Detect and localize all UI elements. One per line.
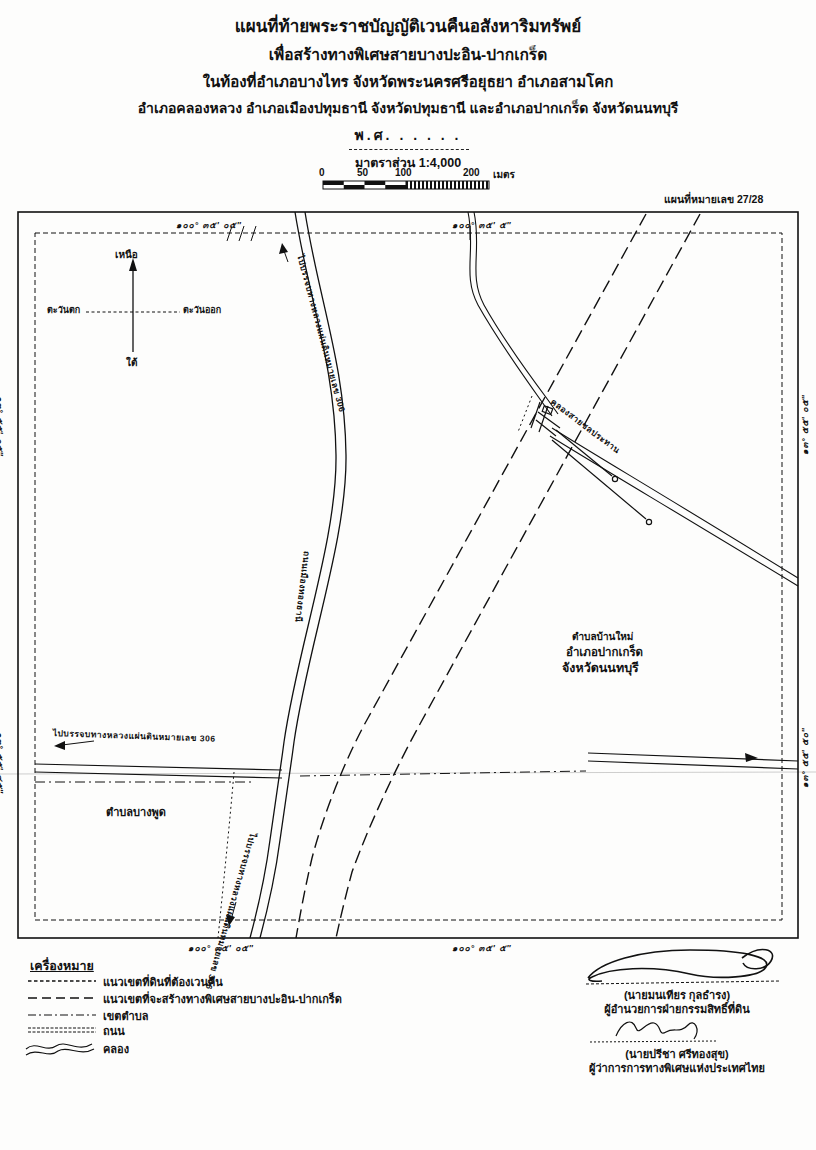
title-line-1: แผนที่ท้ายพระราชบัญญัติเวนคืนอสังหาริมทร…	[0, 12, 816, 39]
bridge-junction-detail	[531, 402, 652, 525]
tambon-ban-mai-label: ตำบลบ้านใหม่	[572, 629, 633, 644]
scalebar-tick-0: 0	[319, 167, 325, 178]
signatory-1-title: ผู้อำนวยการฝ่ายกรรมสิทธิ์ที่ดิน	[552, 1000, 802, 1018]
tambon-bang-phut-label: ตำบลบางพูด	[106, 803, 166, 821]
legend-label-expressway: แนวเขตที่จะสร้างทางพิเศษสายบางปะอิน-ปากเ…	[103, 990, 342, 1008]
ns-road-direction-arrows	[226, 243, 288, 926]
scalebar-tick-100: 100	[395, 167, 412, 178]
legend-symbol-road	[28, 1028, 96, 1032]
coordinate-right-bottom: ๑๓° ๕๕′ ๕๐″	[798, 727, 812, 788]
signatory-2-title: ผู้ว่าการการทางพิเศษแห่งประเทศไทย	[552, 1059, 802, 1077]
coordinate-right-top: ๑๓° ๕๕′ ๐๕″	[798, 394, 812, 455]
west-road	[35, 764, 282, 778]
scalebar-unit: เมตร	[493, 167, 515, 182]
title-line-2: เพื่อสร้างทางพิเศษสายบางปะอิน-ปากเกร็ด	[0, 42, 816, 67]
coordinate-bottom-right: ๑๐๐° ๓๕′ ๕″	[452, 941, 512, 955]
west-road-arrow	[54, 741, 94, 750]
scalebar-tick-50: 50	[357, 167, 368, 178]
legend-label-canal: คลอง	[103, 1040, 129, 1058]
signature-scribble-2	[590, 1022, 716, 1042]
compass-north-label: เหนือ	[115, 247, 138, 262]
expressway-alignment	[296, 214, 700, 938]
legend-header: เครื่องหมาย	[30, 956, 94, 976]
legend-label-expropriation: แนวเขตที่ดินที่ต้องเวนคืน	[103, 973, 223, 991]
scale-bar	[323, 181, 489, 189]
map-outer-frame	[18, 212, 798, 938]
legend-symbol-canal-2	[26, 1049, 94, 1055]
tambon-boundary-line	[35, 771, 586, 782]
coordinate-top-left: ๑๐๐° ๓๕′ ๐๕″	[176, 218, 242, 232]
coordinate-top-right: ๑๐๐° ๓๕′ ๕″	[452, 218, 512, 232]
title-line-4: อำเภอคลองหลวง อำเภอเมืองปทุมธานี จังหวัด…	[0, 97, 816, 119]
compass-south-label: ใต้	[126, 355, 137, 370]
signature-scribble-1	[586, 950, 780, 984]
year-underline	[349, 149, 469, 150]
scalebar-tick-200: 200	[463, 167, 480, 178]
legend-symbols	[26, 981, 96, 1055]
coordinate-left-top: ๑๓° ๕๕′ ๐๕″	[0, 396, 7, 457]
year-line: พ.ศ. . . . . .	[0, 124, 816, 146]
map-sheet: แผนที่ท้ายพระราชบัญญัติเวนคืนอสังหาริมทร…	[0, 0, 816, 1150]
legend-label-road: ถนน	[103, 1022, 125, 1040]
title-line-3: ในท้องที่อำเภอบางไทร จังหวัดพระนครศรีอยุ…	[0, 70, 816, 94]
compass-west-label: ตะวันตก	[47, 303, 80, 317]
coordinate-left-bottom: ๑๓° ๕๕′ ๔๕″	[0, 732, 7, 794]
east-road-arrow	[745, 753, 758, 762]
legend-symbol-canal	[26, 1044, 92, 1049]
compass-east-label: ตะวันออก	[183, 303, 221, 317]
canal	[468, 212, 798, 586]
east-road	[588, 753, 798, 769]
changwat-nonthaburi-label: จังหวัดนนทบุรี	[562, 658, 639, 678]
compass-rose	[86, 258, 180, 352]
map-number: แผนที่หมายเลข 27/28	[664, 191, 763, 208]
expropriation-boundary	[218, 396, 532, 938]
